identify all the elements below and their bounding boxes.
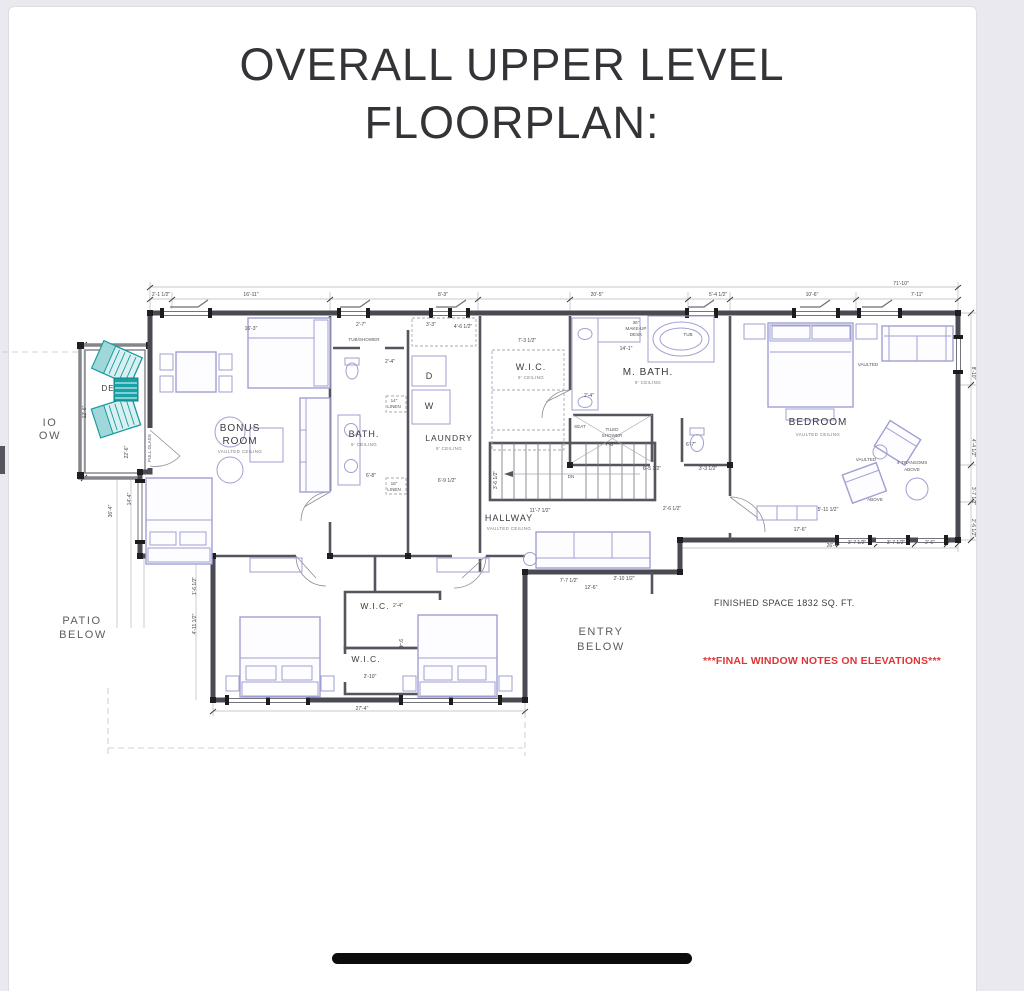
room-label: M. BATH. — [623, 367, 674, 378]
appliance-label: W — [425, 401, 434, 411]
dimension-label: 27'-4" — [356, 706, 369, 712]
deck-table — [114, 378, 138, 401]
room-label: HALLWAY — [485, 513, 533, 523]
fixture-note: ABOVE — [904, 467, 920, 472]
fixture-note: 36" — [633, 320, 640, 325]
deck-furniture — [91, 341, 142, 438]
dimension-label: 16'-11" — [243, 292, 258, 298]
dimension-label: 20'-5" — [591, 292, 604, 298]
fixture-note: LINEN — [387, 487, 401, 492]
screen: { "page": { "title_line1": "OVERALL UPPE… — [0, 0, 1024, 990]
fixture-note: SEAT — [574, 424, 586, 429]
ceiling-note: VAULTED CEILING — [218, 449, 263, 454]
dimension-label: 3'-6 1/2" — [493, 471, 499, 490]
fixture-note: DN — [568, 474, 575, 479]
finished-space-note: FINISHED SPACE 1832 SQ. FT. — [714, 598, 855, 608]
dimension-label: 2'-4" — [385, 359, 395, 365]
home-indicator[interactable] — [332, 953, 692, 964]
hallway-furniture — [524, 532, 651, 568]
area-label: ENTRY — [578, 626, 623, 638]
room-label: ROOM — [222, 436, 257, 447]
dimension-label: 22'-6" — [124, 445, 130, 458]
dimension-label: 1'-6 1/2" — [192, 577, 198, 596]
ceiling-note: VAULTED CEILING — [796, 432, 841, 437]
title-line-1: OVERALL UPPER LEVEL — [239, 39, 784, 90]
ceiling-note: 9' CEILING — [635, 380, 661, 385]
area-label: PATIO — [62, 615, 101, 627]
dimension-label: 8'-3" — [438, 292, 448, 298]
dimension-label: 2'-6" — [925, 540, 935, 546]
room-label: BONUS — [220, 423, 261, 434]
room-label: W.I.C. — [351, 654, 380, 664]
dimension-label: 3'-7 1/2" — [970, 487, 976, 506]
dimension-label: 2'-4" — [393, 603, 403, 609]
dimension-label: 6'-9 1/2" — [438, 478, 457, 484]
dimension-label: 7'-3 1/2" — [518, 338, 537, 344]
dimension-label: 10'-6" — [806, 292, 819, 298]
dimension-label: 7'-7 1/2" — [560, 578, 579, 584]
dimension-label: 6'-7" — [686, 442, 696, 448]
title-line-2: FLOORPLAN: — [364, 97, 659, 148]
dimension-label: 36'-4" — [108, 504, 114, 517]
dimension-label: 3'-7 1/2" — [848, 540, 867, 546]
area-label: BELOW — [577, 641, 625, 653]
fixture-note: VAULTED — [856, 457, 877, 462]
floorplan-drawing: BONUSROOMBATH.LAUNDRYW.I.C.M. BATH.BEDRO… — [0, 270, 1024, 770]
window-note: ***FINAL WINDOW NOTES ON ELEVATIONS*** — [703, 655, 941, 667]
dimension-label: 4'-11 1/2" — [192, 613, 198, 634]
room-label: LAUNDRY — [425, 433, 472, 443]
dimension-label: 17'-6" — [794, 527, 807, 533]
appliance-label: D — [426, 371, 433, 381]
dimension-label: 71'-10" — [893, 281, 909, 287]
dimension-label: 4'-6 1/2" — [454, 324, 473, 330]
fixture-note: TILED — [605, 427, 619, 432]
dimension-label: 2'-6 1/2" — [663, 506, 682, 512]
fixture-note: VAULTED — [858, 362, 879, 367]
dimension-label: 3'-3" — [426, 322, 436, 328]
dimension-label: 14'-4" — [127, 492, 133, 505]
dimension-label: 5'-4 1/2" — [709, 292, 728, 298]
fixture-note: 16" — [391, 481, 398, 486]
ceiling-note: VAULTED CEILING — [487, 526, 532, 531]
dimension-label: 2'-1 1/2" — [152, 292, 171, 298]
fixture-note: 4' TRANSOMS — [897, 460, 928, 465]
room-label: W.I.C. — [360, 601, 389, 611]
fixture-note: TUB — [683, 332, 692, 337]
ceiling-note: 9' CEILING — [518, 375, 544, 380]
fixture-note: SHOWER — [602, 433, 623, 438]
dimension-label: 3'-7 1/2" — [887, 540, 906, 546]
dimension-label: 2'-10 1/2" — [613, 576, 634, 582]
deck — [77, 341, 153, 479]
dimension-label: 9'-4" — [397, 639, 403, 649]
edge-fragment — [0, 446, 5, 474]
ceiling-note: 9' CEILING — [436, 446, 462, 451]
fixture-note: TUB/SHOWER — [348, 337, 380, 342]
dimension-label: 5'-11 1/2" — [818, 507, 839, 513]
dimension-label: 12'-6" — [585, 585, 598, 591]
dimension-label: 6'-8" — [366, 473, 376, 479]
dimension-label: 7'-6" — [605, 442, 615, 448]
room-label: BATH. — [349, 429, 380, 439]
dimension-label: 16'-3" — [245, 326, 258, 332]
dimension-label: 2'-6 1/2" — [970, 519, 976, 538]
dimension-label: 6'-5 1/2" — [643, 466, 662, 472]
dimension-label: 12'-6" — [82, 405, 88, 418]
fixture-note: MAKE-UP — [626, 326, 647, 331]
dimension-label: 4'-4 1/2" — [970, 439, 976, 458]
area-label: OW — [39, 430, 61, 442]
page-title: OVERALL UPPER LEVELFLOORPLAN: — [0, 36, 1024, 152]
dimension-label: 26'-4" — [827, 543, 840, 549]
room-label: DE — [101, 384, 114, 393]
dimension-label: 14'-1" — [620, 346, 633, 352]
dimension-label: 3'-3 1/2" — [699, 466, 718, 472]
fixture-note: LINEN — [387, 404, 401, 409]
area-label: IO — [43, 417, 58, 429]
ceiling-note: 9' CEILING — [351, 442, 377, 447]
fixture-note: DESK — [630, 332, 643, 337]
dimension-label: 2'-7" — [356, 322, 366, 328]
dimension-label: 2'-4" — [584, 393, 594, 399]
fixture-note: ABOVE — [867, 497, 883, 502]
dimension-label: 8'-10" — [970, 367, 976, 380]
room-label: BEDROOM — [789, 417, 848, 428]
fixture-note: 14" — [391, 398, 398, 403]
deck-lounge-chair — [91, 396, 140, 438]
dimension-label: 7'-11" — [911, 292, 924, 298]
room-label: W.I.C. — [516, 362, 547, 372]
fixture-note: FULL GLASS — [147, 434, 152, 462]
dimension-label: 2'-10" — [364, 674, 377, 680]
area-label: BELOW — [59, 629, 107, 641]
dimension-label: 11'-7 1/2" — [530, 508, 551, 514]
